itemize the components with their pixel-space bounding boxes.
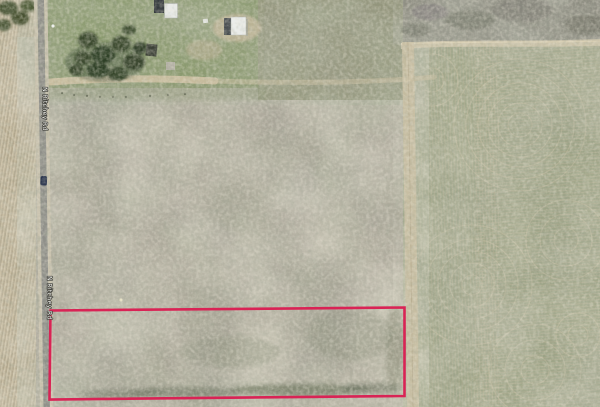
road-label-text: N Ritchey Rd — [41, 87, 48, 131]
aerial-map-canvas[interactable]: N Ritchey Rd N Ritchey Rd — [0, 0, 600, 407]
road-label: N Ritchey Rd — [41, 87, 48, 131]
road-label-text: N Ritchey Rd — [46, 276, 53, 320]
road-label: N Ritchey Rd — [46, 276, 53, 320]
photo-grain — [0, 0, 600, 407]
